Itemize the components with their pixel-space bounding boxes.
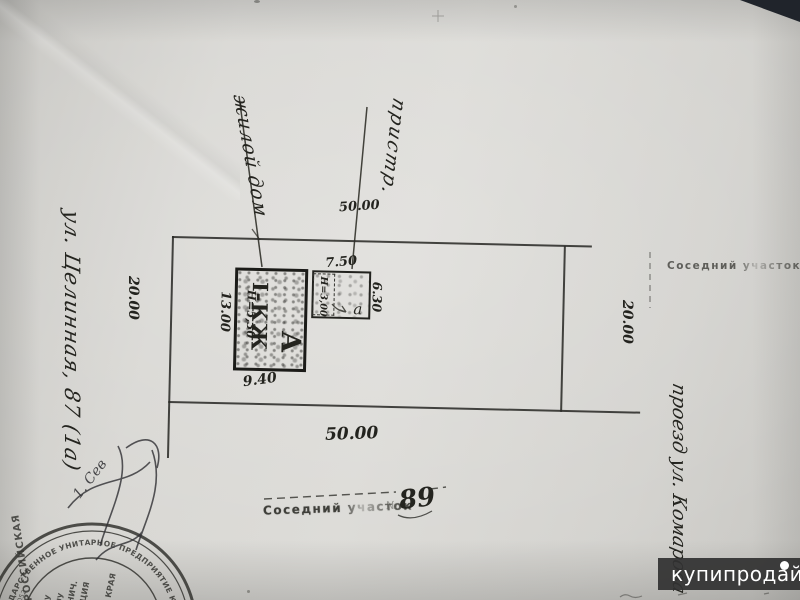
registration-mark [432, 10, 444, 22]
street-address-label: ул. Целинная, 87 (1а) [60, 208, 84, 474]
photographed-site-plan: ГОСУДАРСТВЕННОЕ УНИТАРНОЕ ПРЕДПРИЯТИЕ КР… [0, 0, 800, 600]
plot-dim-bottom: 50.00 [325, 423, 379, 445]
building-side-dim: 13.00 [217, 291, 233, 332]
plot-boundary-right [560, 246, 566, 412]
plot-dim-left: 20.00 [125, 276, 141, 320]
number-sign: № [386, 499, 398, 513]
plot-dim-top: 50.00 [339, 198, 381, 216]
watermark-dot-icon [780, 561, 789, 570]
stamp-inner-circle [22, 558, 162, 600]
watermark-badge: купипродай [658, 558, 800, 590]
building-front-dim: 9.40 [242, 370, 278, 390]
stamp-inner-line: по городу [33, 593, 52, 600]
plot-dim-right: 20.00 [619, 300, 635, 344]
plot-boundary-bottom [168, 401, 640, 414]
stamp-ring-text: ГОСУДАРСТВЕННОЕ УНИТАРНОЕ ПРЕДПРИЯТИЕ КР… [0, 0, 182, 600]
annex-side-dim: 6.30 [369, 282, 385, 313]
pen-marks [620, 593, 769, 598]
round-stamp: ГОСУДАРСТВЕННОЕ УНИТАРНОЕ ПРЕДПРИЯТИЕ КР… [0, 0, 196, 600]
annex-top-dim: 7.50 [325, 254, 358, 272]
neighbor-plot-number: 89 [397, 482, 437, 516]
building-height-label: Н=5,30 [244, 290, 259, 339]
annex-letter: а [353, 300, 362, 318]
building-letter: А [274, 330, 305, 353]
land-plot: I-КЖ А Н=5,30 13.00 9.40 Н=3,00 7.50 6.3… [167, 236, 646, 477]
neighbor-right-label: Соседний участок [667, 260, 800, 272]
annex-height-label: Н=3,00 [317, 276, 329, 316]
